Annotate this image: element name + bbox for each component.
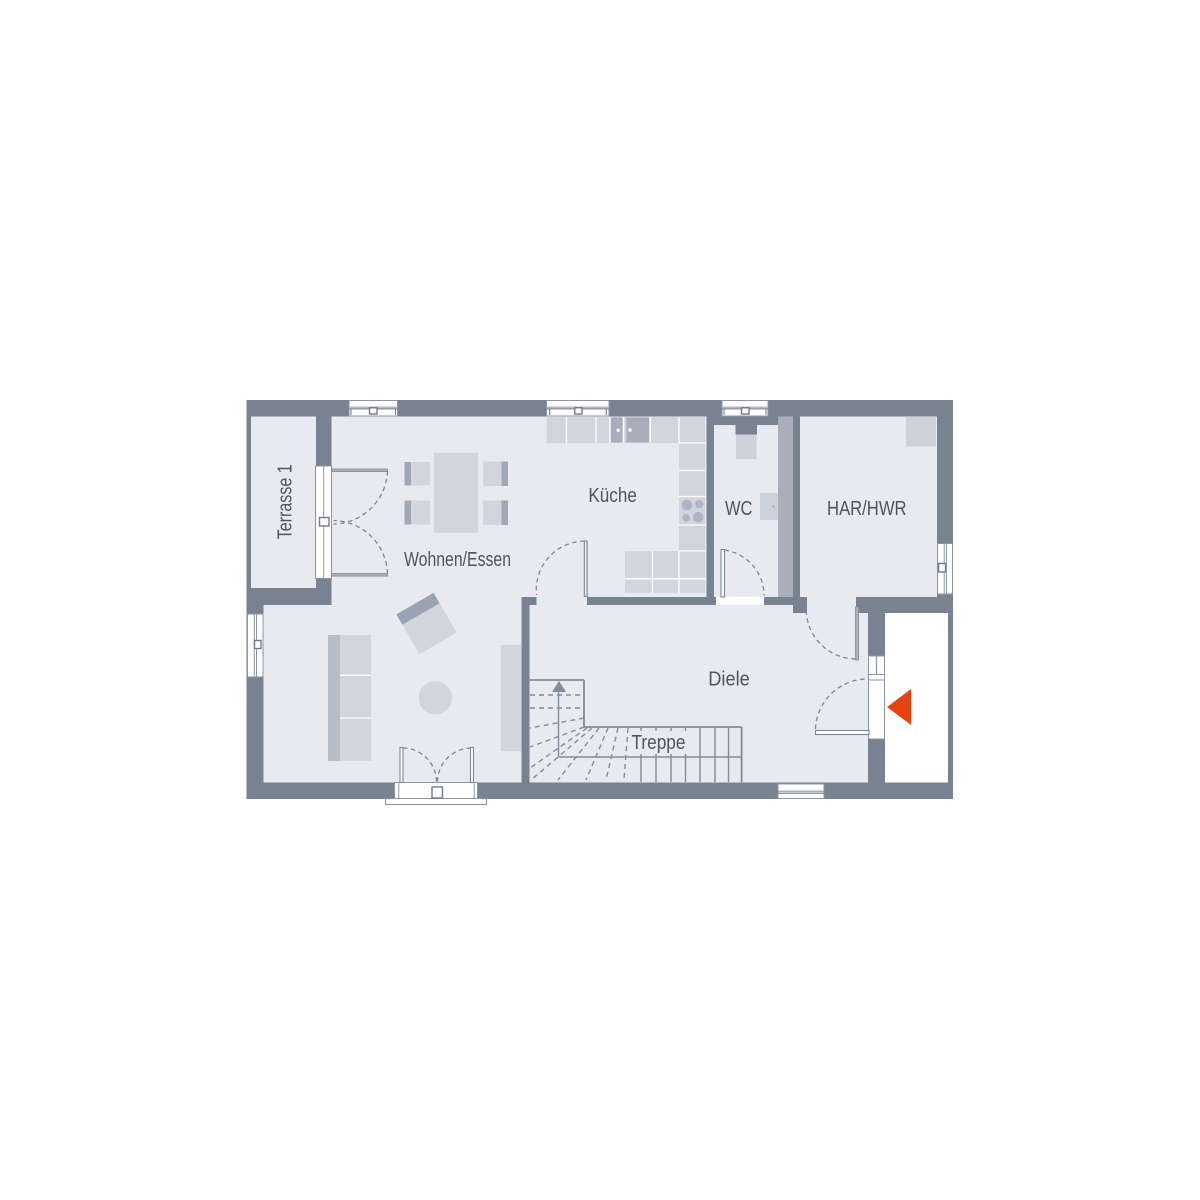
svg-text:Wohnen/Essen: Wohnen/Essen [404, 549, 511, 571]
svg-text:Küche: Küche [588, 485, 637, 507]
svg-text:Diele: Diele [708, 669, 750, 691]
svg-text:Treppe: Treppe [632, 732, 686, 754]
svg-text:HAR/HWR: HAR/HWR [827, 498, 907, 520]
svg-text:WC: WC [725, 498, 753, 520]
svg-text:Terrasse 1: Terrasse 1 [274, 464, 296, 539]
